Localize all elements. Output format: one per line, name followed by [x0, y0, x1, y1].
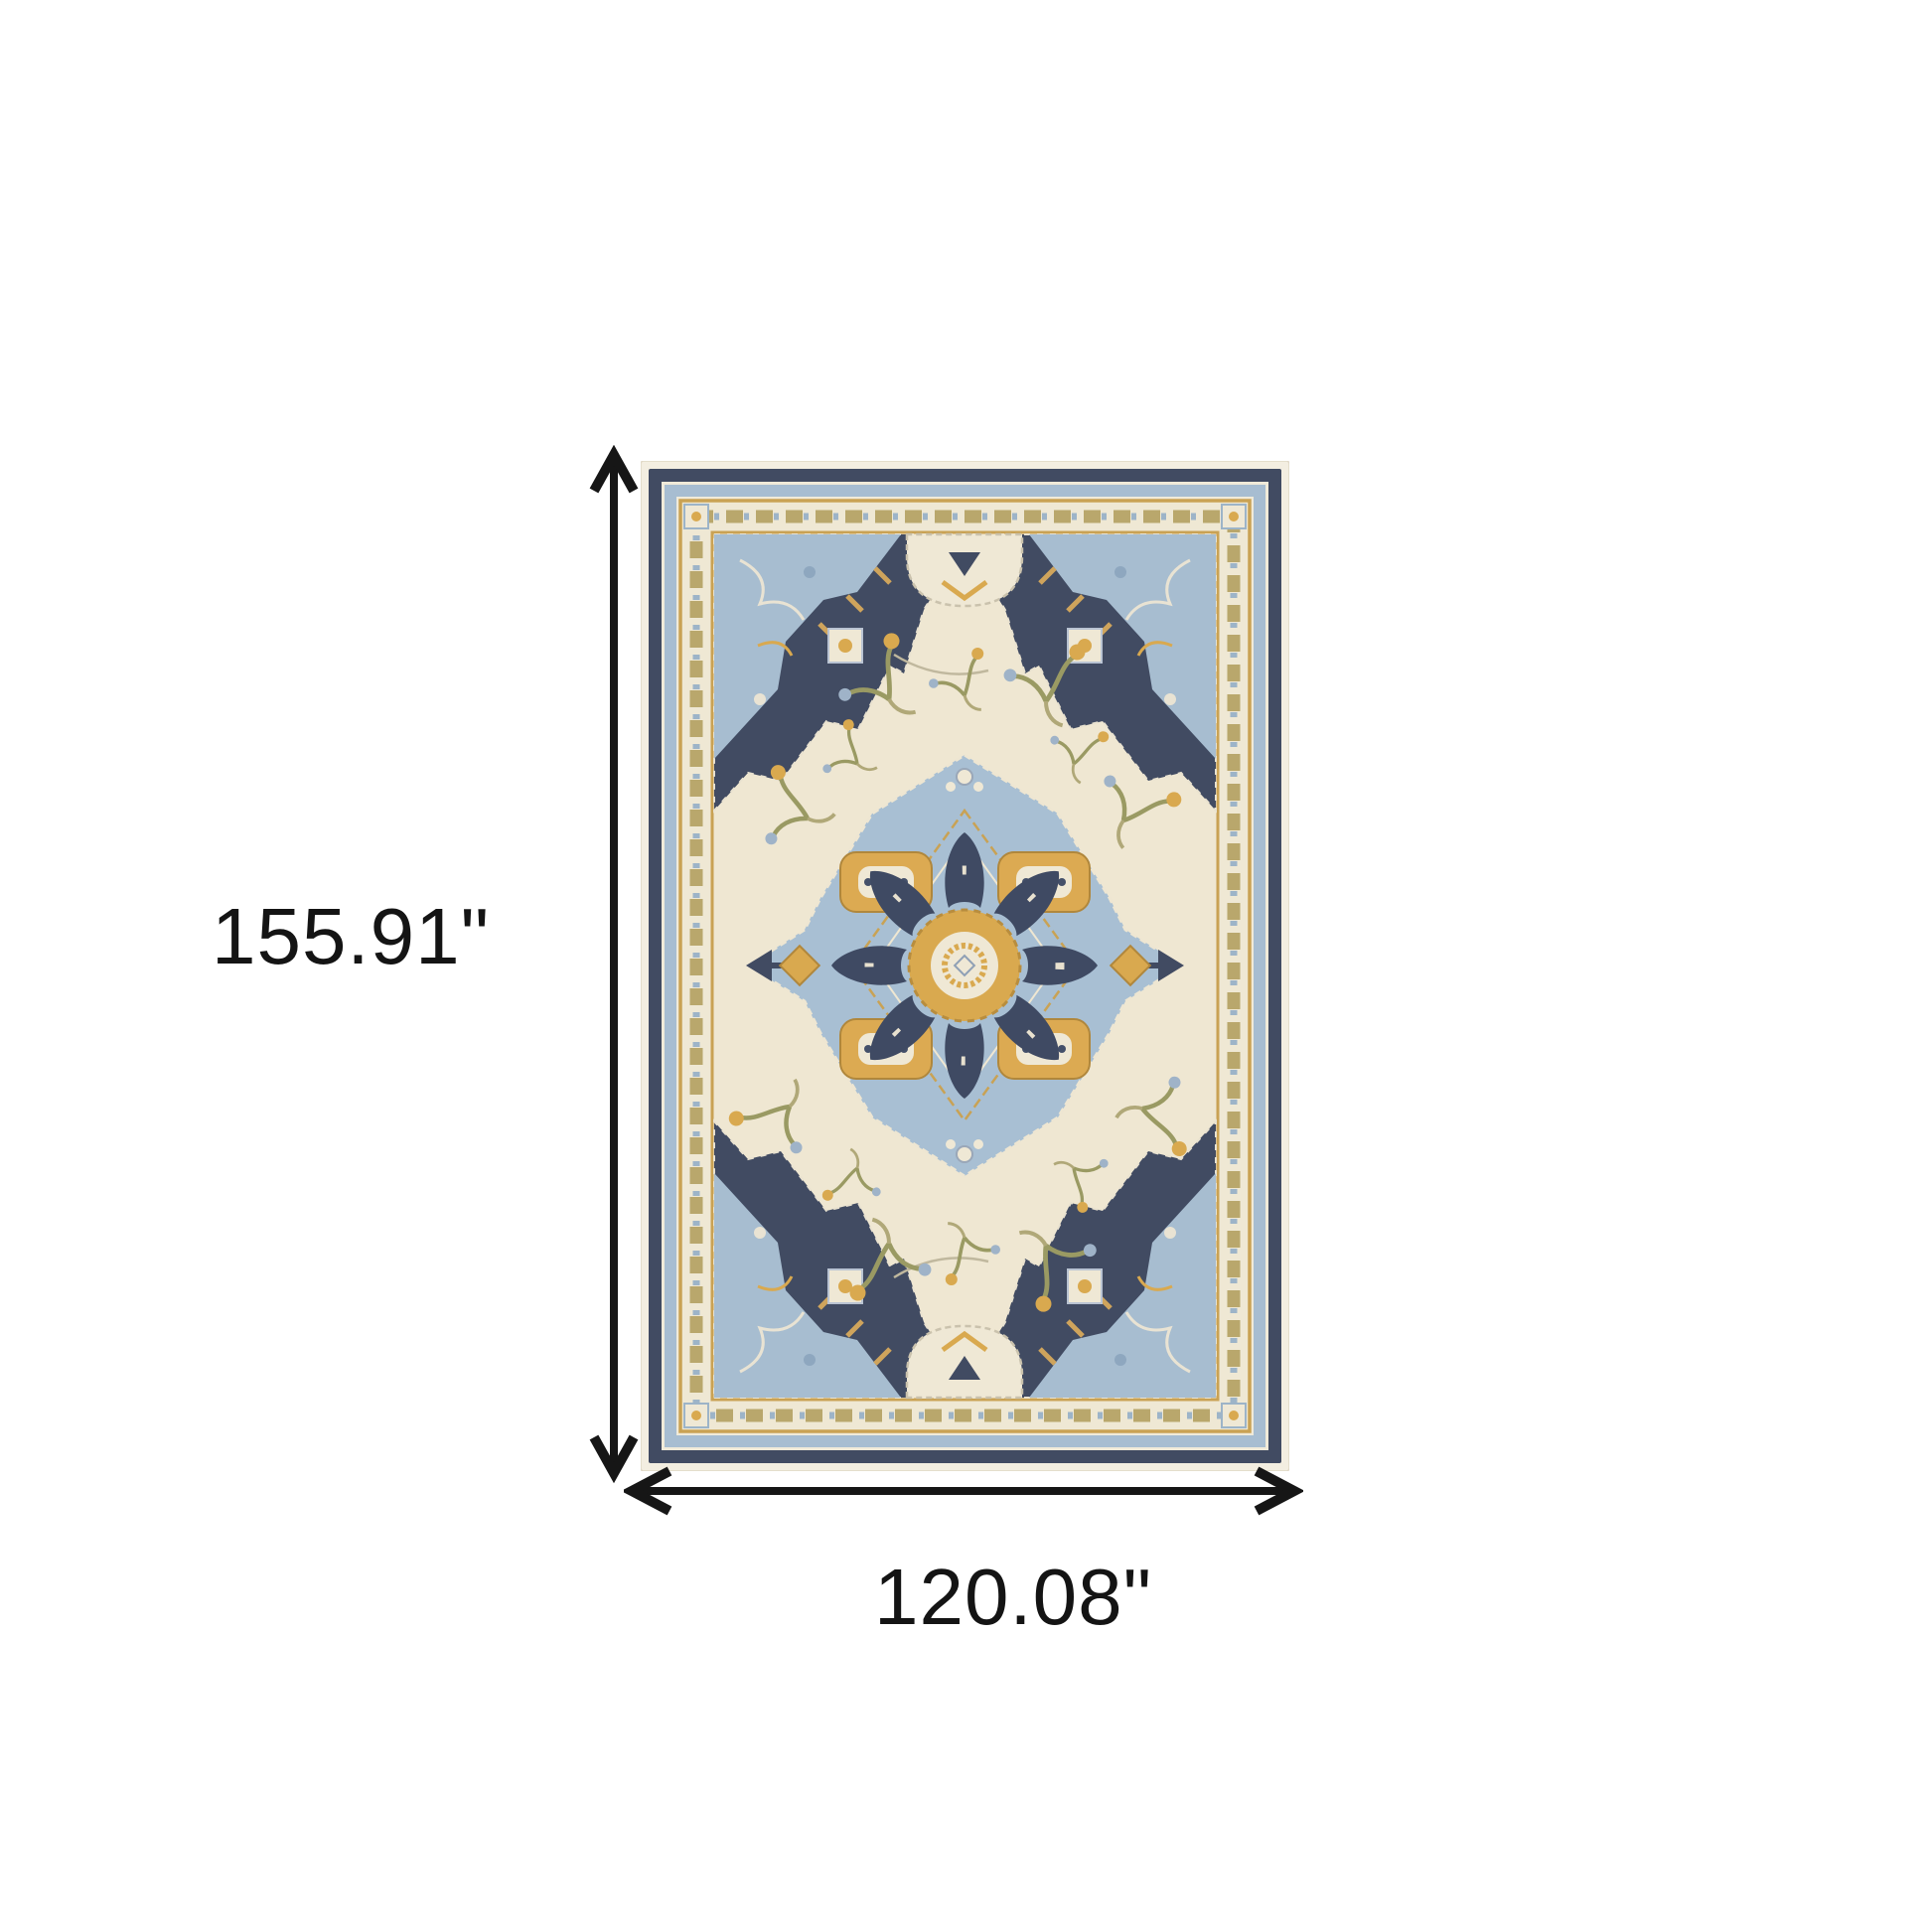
width-dimension-label: 120.08" — [834, 1558, 1192, 1637]
product-dimension-diagram: 155.91" 120.08" — [0, 0, 1932, 1932]
width-dimension-arrow — [624, 1458, 1303, 1524]
height-dimension-arrow — [581, 445, 647, 1488]
rug-image — [641, 461, 1289, 1471]
height-dimension-label: 155.91" — [179, 897, 522, 976]
